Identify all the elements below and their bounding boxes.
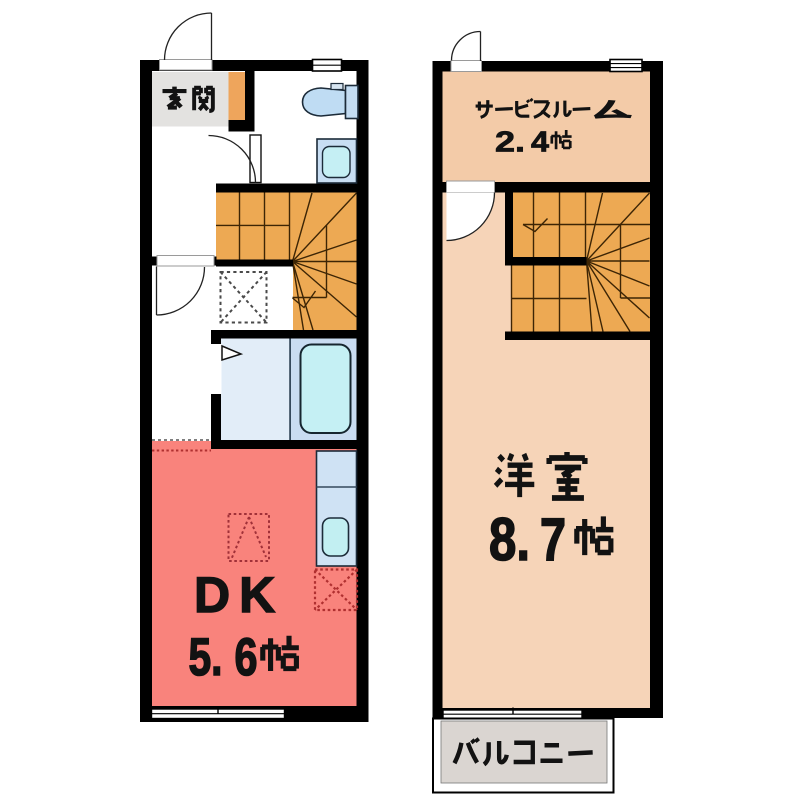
svg-text:7: 7 (540, 506, 566, 573)
svg-text:4: 4 (531, 127, 549, 159)
svg-text:6: 6 (235, 628, 258, 687)
svg-text:5.: 5. (189, 628, 223, 687)
svg-text:DK: DK (194, 567, 284, 623)
svg-text:2.: 2. (495, 127, 525, 159)
svg-text:8.: 8. (489, 506, 530, 573)
